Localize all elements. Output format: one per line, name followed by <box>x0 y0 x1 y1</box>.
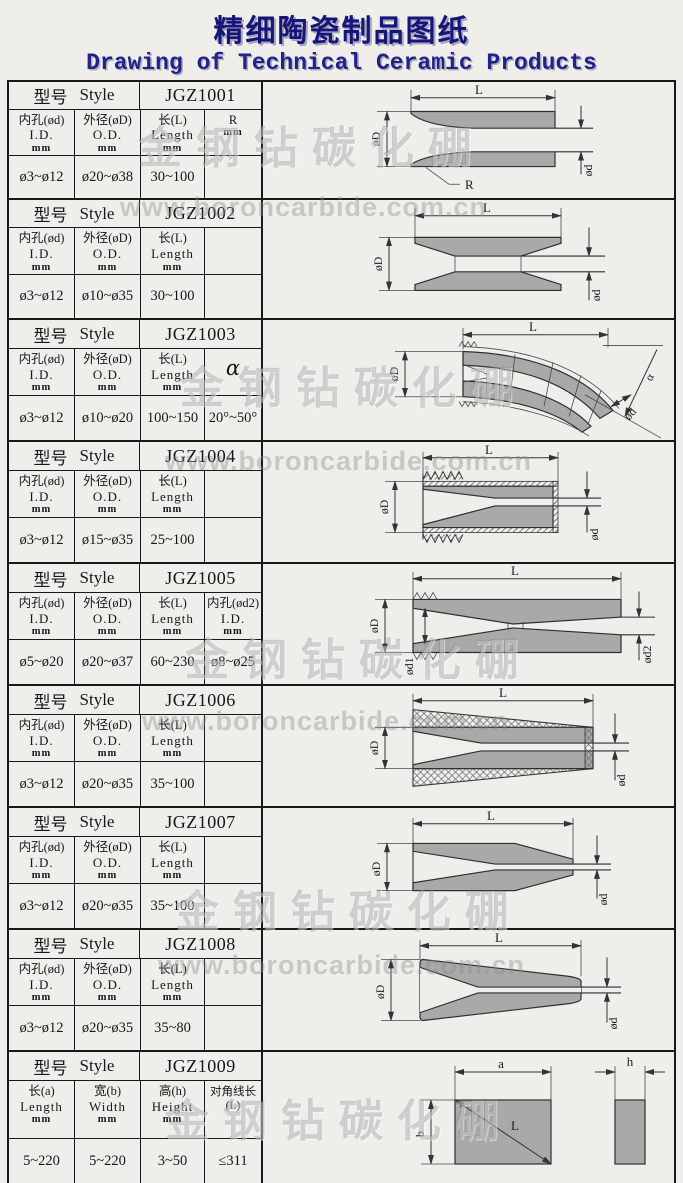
spec-value <box>205 884 261 928</box>
spec-value: 35~100 <box>141 884 205 928</box>
section-jgz1005: 型号 Style JGZ1005 内孔(ød)I.D.mm 外径(øD)O.D.… <box>9 564 674 686</box>
spec-table-jgz1007: 型号 Style JGZ1007 内孔(ød)I.D.mm 外径(øD)O.D.… <box>9 808 263 928</box>
col-header: 宽(b)Widthmm <box>75 1081 141 1138</box>
dim-label-outer-dia: øD <box>371 256 385 271</box>
dim-label-diagonal: L <box>511 1118 519 1133</box>
dim-label-inner-dia: ød <box>581 165 595 177</box>
col-header: 内孔(ød)I.D.mm <box>9 110 75 155</box>
drawing-jgz1009: a b L h <box>263 1052 674 1183</box>
spec-table-jgz1005: 型号 Style JGZ1005 内孔(ød)I.D.mm 外径(øD)O.D.… <box>9 564 263 684</box>
col-header: 内孔(ød2)I.D.mm <box>205 593 261 639</box>
dim-label-inner-dia: ød <box>614 774 628 786</box>
model-number: JGZ1009 <box>140 1052 261 1080</box>
spec-value: ø3~ø12 <box>9 518 75 562</box>
style-label-en: Style <box>80 85 115 105</box>
section-jgz1008: 型号 Style JGZ1008 内孔(ød)I.D.mm 外径(øD)O.D.… <box>9 930 674 1052</box>
spec-value: ø20~ø38 <box>75 156 141 198</box>
technical-drawing-stepped-bore-tube: L øD ød1 ød2 <box>263 564 674 684</box>
style-header: 型号 Style <box>9 808 140 836</box>
col-header: 长(L)Lengthmm <box>141 349 205 395</box>
drawing-shapes <box>375 694 629 786</box>
spec-value: 20°~50° <box>205 396 261 440</box>
dim-label-inner-dia: ød <box>621 405 640 423</box>
dim-label-h: h <box>627 1054 634 1069</box>
spec-value: ø3~ø12 <box>9 396 75 440</box>
col-header: 长(L)Lengthmm <box>141 837 205 883</box>
spec-value: ø3~ø12 <box>9 275 75 318</box>
technical-drawing-knurled-cone: L øD ød <box>263 686 674 806</box>
technical-drawing-plate: a b L h <box>263 1052 674 1183</box>
style-label-en: Style <box>80 1056 115 1076</box>
dim-label-inner-dia: ød <box>587 529 601 541</box>
page: 精细陶瓷制品图纸 Drawing of Technical Ceramic Pr… <box>0 0 683 1183</box>
col-header: 外径(øD)O.D.mm <box>75 959 141 1005</box>
section-jgz1002: 型号 Style JGZ1002 内孔(ød)I.D.mm 外径(øD)O.D.… <box>9 200 674 320</box>
style-header: 型号 Style <box>9 442 140 470</box>
spec-value: 30~100 <box>141 275 205 318</box>
col-header: 外径(øD)O.D.mm <box>75 110 141 155</box>
spec-value: ø5~ø20 <box>9 640 75 684</box>
drawing-shapes <box>375 572 655 661</box>
spec-table-jgz1002: 型号 Style JGZ1002 内孔(ød)I.D.mm 外径(øD)O.D.… <box>9 200 263 318</box>
col-header: 内孔(ød)I.D.mm <box>9 593 75 639</box>
col-header: 外径(øD)O.D.mm <box>75 837 141 883</box>
section-jgz1009: 型号 Style JGZ1009 长(a)Lengthmm 宽(b)Widthm… <box>9 1052 674 1183</box>
style-label-cn: 型号 <box>34 932 68 957</box>
style-label-cn: 型号 <box>34 444 68 469</box>
style-label-en: Style <box>80 324 115 344</box>
spec-value: 5~220 <box>9 1139 75 1183</box>
dim-label-length: L <box>499 686 507 700</box>
style-label-cn: 型号 <box>34 83 68 108</box>
spec-value <box>205 156 261 198</box>
drawing-shapes <box>395 328 663 438</box>
spec-value: ø3~ø12 <box>9 762 75 806</box>
style-header: 型号 Style <box>9 320 140 348</box>
col-header: 内孔(ød)I.D.mm <box>9 715 75 761</box>
model-number: JGZ1007 <box>140 808 261 836</box>
technical-drawing-curved-tube: L øD α ød <box>263 320 674 440</box>
col-header: 外径(øD)O.D.mm <box>75 349 141 395</box>
model-number: JGZ1001 <box>140 82 261 109</box>
style-label-en: Style <box>80 446 115 466</box>
dim-label-outer-dia: øD <box>377 499 391 514</box>
spec-value: ø10~ø35 <box>75 275 141 318</box>
drawing-shapes <box>377 90 593 184</box>
drawing-jgz1006: L øD ød <box>263 686 674 806</box>
col-header: 内孔(ød)I.D.mm <box>9 349 75 395</box>
spec-value: 100~150 <box>141 396 205 440</box>
dim-label-inner-dia-1: ød1 <box>402 657 416 675</box>
technical-drawing-tapered-nozzle: L øD ød <box>263 930 674 1050</box>
style-header: 型号 Style <box>9 564 140 592</box>
dim-label-length: L <box>475 83 483 97</box>
col-header <box>205 959 261 1005</box>
col-header: 长(L)Lengthmm <box>141 959 205 1005</box>
drawing-shapes <box>381 940 621 1023</box>
spec-value: ø3~ø12 <box>9 1006 75 1050</box>
dim-label-outer-dia: øD <box>373 984 387 999</box>
col-header-alpha: α <box>205 349 261 395</box>
col-header: 外径(øD)O.D.mm <box>75 228 141 273</box>
col-header: 内孔(ød)I.D.mm <box>9 471 75 517</box>
style-label-cn: 型号 <box>34 810 68 835</box>
col-header: 长(a)Lengthmm <box>9 1081 75 1138</box>
drawing-jgz1002: L øD ød <box>263 200 674 318</box>
style-label-cn: 型号 <box>34 322 68 347</box>
section-jgz1006: 型号 Style JGZ1006 内孔(ød)I.D.mm 外径(øD)O.D.… <box>9 686 674 808</box>
dim-label-inner-dia: ød <box>606 1017 620 1029</box>
dim-label-radius: R <box>465 178 474 192</box>
model-number: JGZ1008 <box>140 930 261 958</box>
page-title-chinese: 精细陶瓷制品图纸 <box>0 6 683 50</box>
spec-value: ø20~ø35 <box>75 762 141 806</box>
dim-label-inner-dia: ød <box>596 894 610 906</box>
col-header: 外径(øD)O.D.mm <box>75 715 141 761</box>
spec-value: ø3~ø12 <box>9 156 75 198</box>
product-sheet: 型号 Style JGZ1001 内孔(ød)I.D.mm 外径(øD)O.D.… <box>7 80 676 1183</box>
col-header: 内孔(ød)I.D.mm <box>9 228 75 273</box>
spec-value: ø15~ø35 <box>75 518 141 562</box>
spec-table-jgz1001: 型号 Style JGZ1001 内孔(ød)I.D.mm 外径(øD)O.D.… <box>9 82 263 198</box>
spec-value: 60~230 <box>141 640 205 684</box>
drawing-shapes <box>385 452 601 542</box>
style-header: 型号 Style <box>9 1052 140 1080</box>
col-header: 长(L)Lengthmm <box>141 593 205 639</box>
spec-value: ø20~ø35 <box>75 884 141 928</box>
style-label-cn: 型号 <box>34 566 68 591</box>
drawing-jgz1005: L øD ød1 ød2 <box>263 564 674 684</box>
drawing-shapes <box>379 208 605 300</box>
page-title-english: Drawing of Technical Ceramic Products <box>0 50 683 76</box>
dim-label-outer-dia: øD <box>369 861 383 876</box>
spec-table-jgz1003: 型号 Style JGZ1003 内孔(ød)I.D.mm 外径(øD)O.D.… <box>9 320 263 440</box>
dim-label-inner-dia-2: ød2 <box>640 646 654 664</box>
dim-label-outer-dia: øD <box>367 740 381 755</box>
style-label-cn: 型号 <box>34 1054 68 1079</box>
drawing-shapes <box>377 818 611 899</box>
spec-value: 35~80 <box>141 1006 205 1050</box>
col-header: 长(L)Lengthmm <box>141 228 205 273</box>
col-header: 外径(øD)O.D.mm <box>75 471 141 517</box>
spec-table-jgz1006: 型号 Style JGZ1006 内孔(ød)I.D.mm 外径(øD)O.D.… <box>9 686 263 806</box>
model-number: JGZ1003 <box>140 320 261 348</box>
style-label-en: Style <box>80 934 115 954</box>
dim-label-inner-dia: ød <box>589 289 603 301</box>
spec-value: 5~220 <box>75 1139 141 1183</box>
dim-label-length: L <box>495 931 503 945</box>
dim-label-b: b <box>413 1131 427 1137</box>
spec-value: ø3~ø12 <box>9 884 75 928</box>
spec-table-jgz1004: 型号 Style JGZ1004 内孔(ød)I.D.mm 外径(øD)O.D.… <box>9 442 263 562</box>
drawing-jgz1008: L øD ød <box>263 930 674 1050</box>
dim-label-length: L <box>485 443 493 457</box>
style-header: 型号 Style <box>9 930 140 958</box>
dim-label-outer-dia: øD <box>369 131 383 146</box>
col-header: 长(L)Lengthmm <box>141 715 205 761</box>
style-label-en: Style <box>80 204 115 224</box>
dim-label-outer-dia: øD <box>367 618 381 633</box>
col-header <box>205 471 261 517</box>
technical-drawing-threaded-tube: L øD ød <box>263 442 674 562</box>
col-header: 对角线长 (L) <box>205 1081 261 1138</box>
dim-label-outer-dia: øD <box>387 366 401 381</box>
col-header: 长(L)Lengthmm <box>141 471 205 517</box>
spec-value: ø10~ø20 <box>75 396 141 440</box>
spec-value: 35~100 <box>141 762 205 806</box>
style-header: 型号 Style <box>9 686 140 714</box>
col-header: 外径(øD)O.D.mm <box>75 593 141 639</box>
spec-value <box>205 1006 261 1050</box>
style-label-cn: 型号 <box>34 201 68 226</box>
dim-label-length: L <box>511 564 519 578</box>
col-header <box>205 715 261 761</box>
technical-drawing-double-taper-tube: L øD ød <box>263 200 674 318</box>
col-header <box>205 228 261 273</box>
col-header: 内孔(ød)I.D.mm <box>9 959 75 1005</box>
spec-value: 30~100 <box>141 156 205 198</box>
style-label-en: Style <box>80 690 115 710</box>
model-number: JGZ1004 <box>140 442 261 470</box>
drawing-jgz1003: L øD α ød <box>263 320 674 440</box>
dim-label-a: a <box>498 1056 504 1071</box>
section-jgz1001: 型号 Style JGZ1001 内孔(ød)I.D.mm 外径(øD)O.D.… <box>9 82 674 200</box>
drawing-shapes <box>421 1066 665 1164</box>
style-label-en: Style <box>80 812 115 832</box>
col-header: 高(h)Heightmm <box>141 1081 205 1138</box>
technical-drawing-flared-tube: L øD ød R <box>263 82 674 198</box>
spec-table-jgz1008: 型号 Style JGZ1008 内孔(ød)I.D.mm 外径(øD)O.D.… <box>9 930 263 1050</box>
spec-value: ø20~ø35 <box>75 1006 141 1050</box>
col-header: 长(L)Lengthmm <box>141 110 205 155</box>
drawing-jgz1001: L øD ød R <box>263 82 674 198</box>
model-number: JGZ1006 <box>140 686 261 714</box>
technical-drawing-chamfered-nozzle: L øD ød <box>263 808 674 928</box>
style-label-cn: 型号 <box>34 688 68 713</box>
drawing-jgz1007: L øD ød <box>263 808 674 928</box>
model-number: JGZ1005 <box>140 564 261 592</box>
dim-label-length: L <box>483 201 491 215</box>
spec-value: ø8~ø25 <box>205 640 261 684</box>
section-jgz1007: 型号 Style JGZ1007 内孔(ød)I.D.mm 外径(øD)O.D.… <box>9 808 674 930</box>
style-header: 型号 Style <box>9 82 140 109</box>
model-number: JGZ1002 <box>140 200 261 227</box>
col-header <box>205 837 261 883</box>
spec-value <box>205 275 261 318</box>
spec-value <box>205 518 261 562</box>
section-jgz1004: 型号 Style JGZ1004 内孔(ød)I.D.mm 外径(øD)O.D.… <box>9 442 674 564</box>
spec-table-jgz1009: 型号 Style JGZ1009 长(a)Lengthmm 宽(b)Widthm… <box>9 1052 263 1183</box>
section-jgz1003: 型号 Style JGZ1003 内孔(ød)I.D.mm 外径(øD)O.D.… <box>9 320 674 442</box>
spec-value: ø20~ø37 <box>75 640 141 684</box>
spec-value: 3~50 <box>141 1139 205 1183</box>
spec-value: 25~100 <box>141 518 205 562</box>
style-label-en: Style <box>80 568 115 588</box>
dim-label-length: L <box>487 809 495 823</box>
dim-label-angle: α <box>642 371 657 383</box>
spec-value: ≤311 <box>205 1139 261 1183</box>
spec-value <box>205 762 261 806</box>
col-header: 内孔(ød)I.D.mm <box>9 837 75 883</box>
col-header: Rmm <box>205 110 261 155</box>
style-header: 型号 Style <box>9 200 140 227</box>
drawing-jgz1004: L øD ød <box>263 442 674 562</box>
dim-label-length: L <box>529 320 537 334</box>
